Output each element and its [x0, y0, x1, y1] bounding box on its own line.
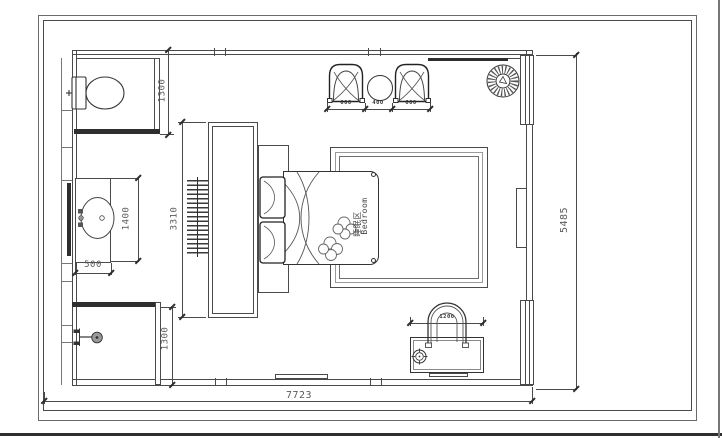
desk-chair-icon [425, 301, 469, 348]
wall-bottom-tick [381, 378, 382, 386]
wall-top-tick [214, 48, 215, 56]
wall-top-tick [225, 48, 226, 56]
wall-bottom-outer [72, 379, 533, 380]
wall-right-bay [516, 188, 527, 248]
dim-toilet-room-depth: 1300 [159, 75, 168, 107]
dim-line [172, 307, 173, 385]
toilet-room-top [76, 58, 154, 59]
wall-left-joint [61, 147, 72, 148]
sheet-edge-right [718, 0, 720, 438]
wall-left-joint [61, 263, 72, 264]
door-threshold [275, 374, 328, 379]
shower-room-wall-top [72, 302, 158, 307]
ceiling-fan-icon [486, 64, 520, 98]
dim-line [327, 109, 431, 110]
wall-bottom-inner [72, 385, 533, 386]
wall-top-tick [368, 48, 369, 56]
sink-icon [78, 196, 118, 240]
wall-top-outer [72, 50, 533, 51]
dim-shower-room-depth: 1300 [162, 323, 171, 355]
window-right-bottom [520, 300, 534, 385]
wall-left-joint [61, 342, 72, 343]
wall-left-exterior [61, 58, 62, 385]
dim-vanity-length: 1400 [123, 203, 132, 235]
wall-bottom-tick [370, 378, 371, 386]
dim-tv-wall-length: 3310 [171, 202, 180, 236]
dim-side-table: 400 [364, 101, 392, 107]
armchair-icon [393, 62, 431, 103]
bed-decor-clouds [318, 213, 358, 265]
dim-ext [536, 389, 576, 390]
tv-icon-axis [197, 177, 198, 257]
dim-line [182, 122, 183, 317]
wall-left-joint [61, 281, 72, 282]
window-right-bottom-mullion [525, 301, 526, 384]
wall-bottom-tick [215, 378, 216, 386]
window-right-top-mullion [525, 56, 526, 124]
side-table-icon [367, 75, 393, 101]
wall-top-lintel [428, 58, 508, 61]
bed-corner-post [371, 172, 376, 177]
armchair-icon [327, 62, 365, 103]
window-right-top [520, 55, 534, 125]
survey-point-icon [411, 348, 428, 365]
dim-line-overall-depth [576, 53, 577, 390]
wall-left-door-panel [67, 183, 71, 256]
dim-line [138, 178, 139, 262]
dim-overall-width: 7723 [267, 391, 331, 401]
dim-overall-depth: 5485 [560, 198, 570, 242]
dim-line-overall-width [44, 401, 533, 402]
dim-armchair-left: 600 [332, 101, 360, 107]
floor-plan-canvas: 1300 1400 500 3310 [0, 0, 722, 438]
sheet-edge-bottom [0, 433, 722, 436]
pillow-icon [259, 221, 286, 264]
toilet-icon [66, 72, 128, 114]
wall-top-inner [72, 54, 533, 55]
dim-line [75, 273, 112, 274]
dim-line [168, 50, 169, 135]
wall-left-joint [61, 325, 72, 326]
wall-top-tick [380, 48, 381, 56]
shower-head-icon [72, 327, 104, 351]
tv-cabinet-inner [212, 126, 254, 314]
dim-vanity-width: 500 [77, 261, 109, 270]
desk-base [429, 373, 468, 377]
bed-corner-post [371, 258, 376, 263]
wall-bottom-tick [226, 378, 227, 386]
dim-ext [536, 55, 576, 56]
wall-left-joint [61, 180, 72, 181]
pillow-icon [259, 176, 286, 219]
window-right-top-mullion [529, 56, 530, 124]
dim-armchair-right: 600 [397, 101, 425, 107]
window-right-bottom-mullion [529, 301, 530, 384]
toilet-room-wall-bottom [74, 129, 160, 134]
room-label-en: Bedroom [361, 194, 369, 238]
